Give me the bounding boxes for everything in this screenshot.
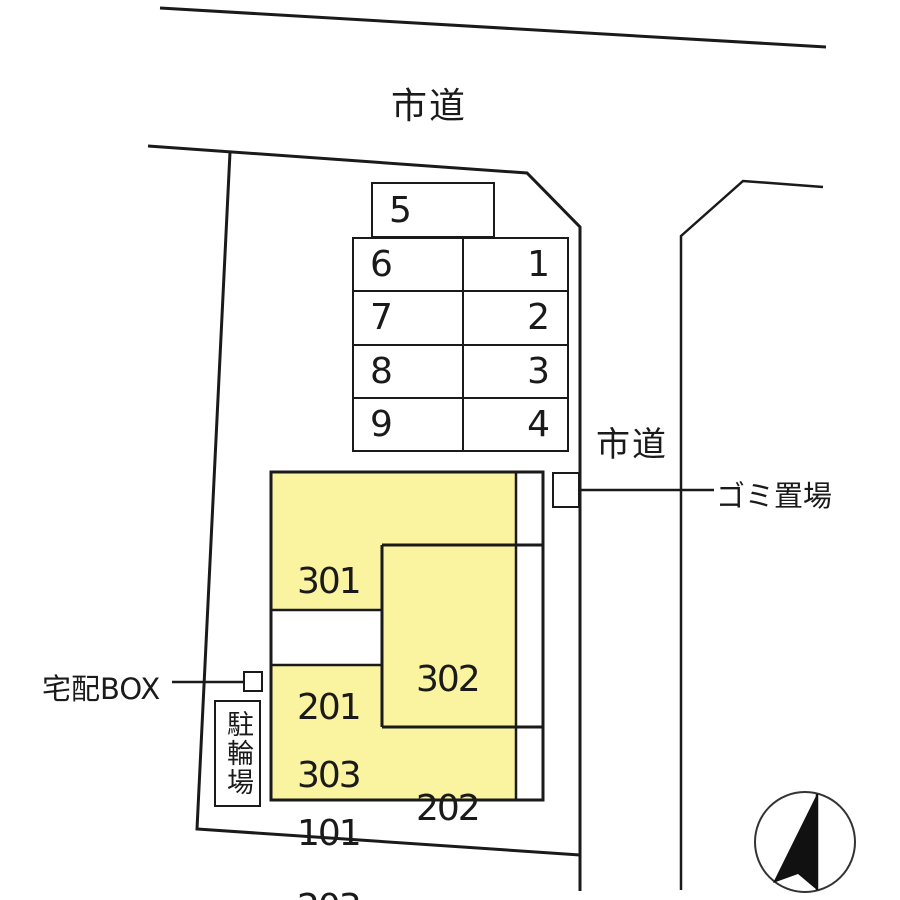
bicycle-parking-label: 駐輪場 [218,710,257,797]
parking-space-label: 5 [389,190,411,231]
road-top-line [160,8,826,47]
garbage-label: ゴミ置場 [716,473,832,515]
parking-space-8: 8 [354,346,462,397]
north-arrow-icon [755,792,855,892]
unit-number: 203 [297,886,360,900]
delivery-label: 宅配BOX [42,666,160,708]
road-right-line [681,181,823,890]
parking-space-7: 7 [354,292,462,343]
bicycle-parking-box: 駐輪場 [214,700,261,807]
parking-grid: 6 1 7 2 8 3 9 4 [352,237,569,452]
site-plan: 市道 市道 5 6 1 7 2 8 3 9 4 301 201 101 302 … [0,0,900,900]
road-top-label: 市道 [391,77,467,129]
unit-stack-left-bottom: 303 203 103 [297,666,360,900]
parking-space-4: 4 [464,399,567,450]
unit-stack-center: 302 202 102 [416,572,479,900]
unit-number: 303 [297,754,360,798]
parking-space-6: 6 [354,239,462,290]
parking-space-5: 5 [371,182,495,238]
unit-number: 302 [416,658,479,701]
road-right-label: 市道 [596,417,668,466]
parking-space-2: 2 [464,292,567,343]
unit-number: 202 [416,787,479,830]
parking-space-1: 1 [464,239,567,290]
delivery-box [243,671,263,692]
unit-number: 301 [297,561,360,603]
parking-space-3: 3 [464,346,567,397]
garbage-box [552,472,580,508]
parking-space-9: 9 [354,399,462,450]
